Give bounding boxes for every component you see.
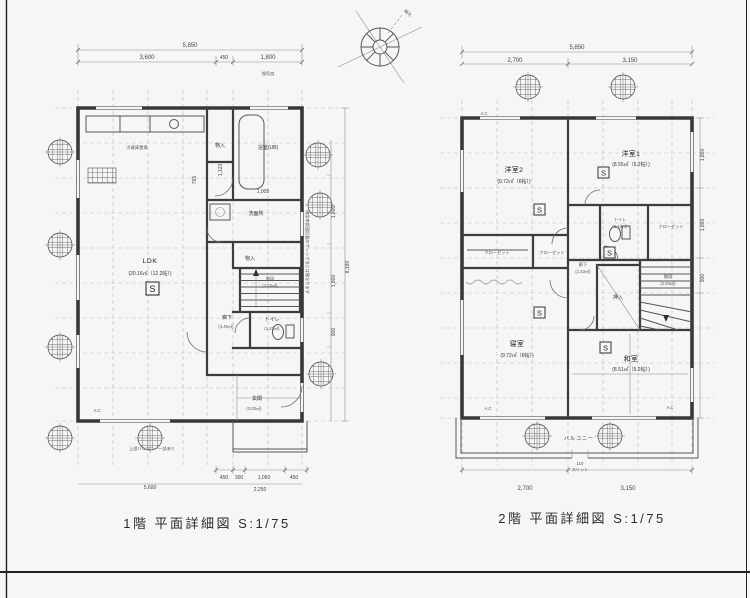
floor1-toilet-label: トイレ (264, 317, 279, 323)
tatami-lines (572, 334, 688, 414)
floor1-stairs-area: (2.63㎡) (262, 282, 278, 288)
floor1-senmenjo-label: 洗面所 (248, 210, 263, 217)
floor2-toilet-area: (1.22㎡) (612, 223, 628, 229)
floor1-sash-note: 確認申請図記載のサッシ寸法とは異なります (304, 210, 311, 294)
floor-plan-drawing: 磁北 (0, 0, 750, 598)
floor2-interior-walls (462, 118, 692, 418)
floor2-yoshitsu2-area: (9.72㎡（6帖）) (497, 178, 531, 185)
s-mark-label: S (537, 309, 542, 318)
floor2-dim-top-seg2: 3,150 (622, 58, 638, 64)
compass-cross-lines (338, 11, 422, 83)
floor1-dim-right3: 900 (331, 328, 337, 337)
equipment-hatched-box (88, 168, 116, 183)
column-mark-icon (303, 140, 333, 170)
floor1-dim-top-seg1: 3,600 (139, 55, 155, 61)
floor1-ldk-area: (20.16㎡（12.2帖）) (128, 270, 171, 277)
floor1-dim-bottom-left: 5,600 (144, 485, 157, 491)
s-mark-label: S (149, 284, 155, 294)
floor1-monoire-top-label: 物入 (215, 142, 225, 149)
floor2-slit-num: 110 (577, 461, 584, 466)
floor1-genkan-step (237, 375, 302, 421)
floor2-dim-right3: 900 (700, 274, 706, 283)
kitchen-counter (86, 116, 204, 132)
floor2-ac-label-bottom-right: A.C (667, 405, 674, 410)
floor2-closet-right-label: クローゼット (658, 223, 683, 230)
drawing-sheet: 磁北 (0, 0, 750, 598)
floor2-yoshitsu1-label: 洋室1 (622, 149, 641, 158)
floor2-yoshitsu1-area: (8.55㎡（5.2帖）) (612, 161, 650, 168)
floor2-stair-arrow-head (663, 315, 669, 322)
floor1-stair-arrow-head (253, 269, 259, 276)
floor2-caption: 2階 平面詳細図 S:1/75 (498, 511, 666, 526)
floor2-washitsu-area: (8.51㎡（5.2帖）) (612, 366, 650, 373)
floor1-dim-top-total: 5,850 (182, 43, 198, 49)
compass-rose: 磁北 (338, 7, 422, 83)
floor1-monoire-mid-label: 物入 (245, 255, 255, 262)
floor1-dim-ticks (76, 48, 309, 472)
floor1-balcony-over-note: 上部バルコニー一部あり (129, 445, 175, 452)
floor2-closet2-label: クローゼット (539, 249, 564, 256)
floor2-slit-label: スリット (572, 467, 589, 472)
column-mark-icon (45, 137, 75, 167)
floor1-genkan-label: 玄関 (252, 395, 262, 402)
floor2-closet1-label: クローゼット (484, 249, 509, 256)
floor1-toilet-area: (1.22㎡) (264, 325, 280, 331)
floor1-dim-bottom4: 450 (290, 475, 299, 481)
floor2-dim-bottom1: 2,700 (517, 486, 533, 492)
floor1-dim-bottom2: 300 (235, 475, 244, 481)
floor1-dim-right-total: 8,190 (345, 261, 351, 274)
column-mark-icon (45, 423, 75, 453)
floor1-ldk-label: LDK (143, 258, 158, 265)
floor1-rouka-area: (4.46㎡) (218, 323, 234, 329)
floor1-column-marks (45, 137, 336, 453)
floor1-dim-bottom3: 1,050 (258, 475, 271, 481)
floor2-rouka-label: 廊下 (579, 261, 587, 268)
floor1-dim-inner-1123: 1,123 (218, 164, 224, 177)
floor1-dim-top-seg2: 450 (220, 55, 229, 61)
compass-north-label: 磁北 (402, 7, 414, 18)
floor1-rouka-label: 廊下 (222, 314, 232, 321)
s-mark-label: S (607, 249, 612, 258)
floor2-dim-right2: 1,800 (700, 219, 706, 232)
floor1-door-arcs (187, 178, 302, 407)
floor2-labels: 洋室2 (9.72㎡（6帖）) 洋室1 (8.55㎡（5.2帖）) トイレ (1… (481, 111, 684, 442)
floor2-ac-label-top: A.C (481, 111, 488, 116)
floor1-entrance-porch (233, 421, 307, 452)
floor1-caption: 1階 平面詳細図 S:1/75 (123, 516, 291, 531)
column-mark-icon (608, 72, 638, 102)
floor1-smoke-detector: S (146, 282, 159, 295)
floor1-top-note: 換気扇 (262, 70, 275, 77)
floor2-balcony-label: バルコニー (564, 436, 594, 442)
floor2-stairs-area: (2.63㎡) (660, 280, 676, 286)
floor2-dim-bottom2: 3,150 (620, 486, 636, 492)
floor1-dim-right1: 1,800 (331, 206, 337, 219)
toilet-tank-1f (286, 325, 294, 338)
s-mark-label: S (601, 169, 606, 178)
floor1-dim-inner-765: 765 (192, 176, 198, 185)
washbasin-bowl (216, 208, 225, 217)
column-mark-icon (595, 421, 625, 451)
floor1-bath-label: 浴室(UB) (258, 144, 279, 151)
floor2-washitsu-label: 和室 (624, 354, 639, 363)
floor2-plan: S S S S S 5,850 2,700 3,150 2,700 3,150 … (440, 45, 715, 492)
floor2-ac-label-bottom-left: A.C (485, 406, 492, 411)
sheet-border (0, 0, 750, 598)
floor1-plan: S 5,850 3,600 450 1,800 換気扇 1,005 1,123 … (45, 43, 351, 493)
curtain-wavy-line (466, 280, 522, 284)
floor1-fridge-label: 冷蔵庫置場 (127, 144, 149, 151)
compass-north-line (388, 15, 402, 33)
floor2-shinshitsu-label: 寝室 (510, 339, 525, 348)
column-mark-icon (513, 72, 543, 102)
column-mark-icon (522, 421, 552, 451)
floor1-dim-bottom-sub: 2,250 (254, 487, 267, 493)
floor1-dim-top-seg3: 1,800 (260, 55, 276, 61)
floor2-dim-right1: 1,800 (700, 149, 706, 162)
washbasin-counter (210, 204, 230, 220)
floor1-ac-label: A.C (94, 408, 101, 413)
s-mark-label: S (603, 344, 608, 353)
floor1-dim-bottom1: 450 (220, 475, 229, 481)
floor1-stairs (240, 269, 300, 308)
floor2-yoshitsu2-label: 洋室2 (505, 165, 524, 174)
floor2-oshiire-label: 押入 (613, 294, 623, 301)
floor2-toilet-label: トイレ (614, 217, 627, 222)
column-mark-icon (45, 332, 75, 362)
column-mark-icon (306, 359, 336, 389)
floor1-genkan-area: (2.03㎡) (246, 405, 262, 411)
column-mark-icon (45, 230, 75, 260)
floor2-dim-top-seg1: 2,700 (507, 58, 523, 64)
floor2-shinshitsu-area: (9.72㎡（6帖）) (500, 352, 534, 359)
kitchen-sink (170, 120, 179, 129)
floor2-stairs-label: 階段 (664, 273, 673, 280)
floor1-dim-inner-1005: 1,005 (257, 189, 270, 195)
floor1-stairs-label: 階段 (266, 275, 275, 282)
s-mark-label: S (537, 206, 542, 215)
floor2-dim-top-total: 5,850 (569, 45, 585, 51)
floor2-rouka-area: (1.43㎡) (575, 268, 591, 274)
floor1-dim-right2: 1,800 (331, 275, 337, 288)
floor1-labels: LDK (20.16㎡（12.2帖）) 物入 浴室(UB) 洗面所 物入 階段 … (94, 142, 311, 452)
